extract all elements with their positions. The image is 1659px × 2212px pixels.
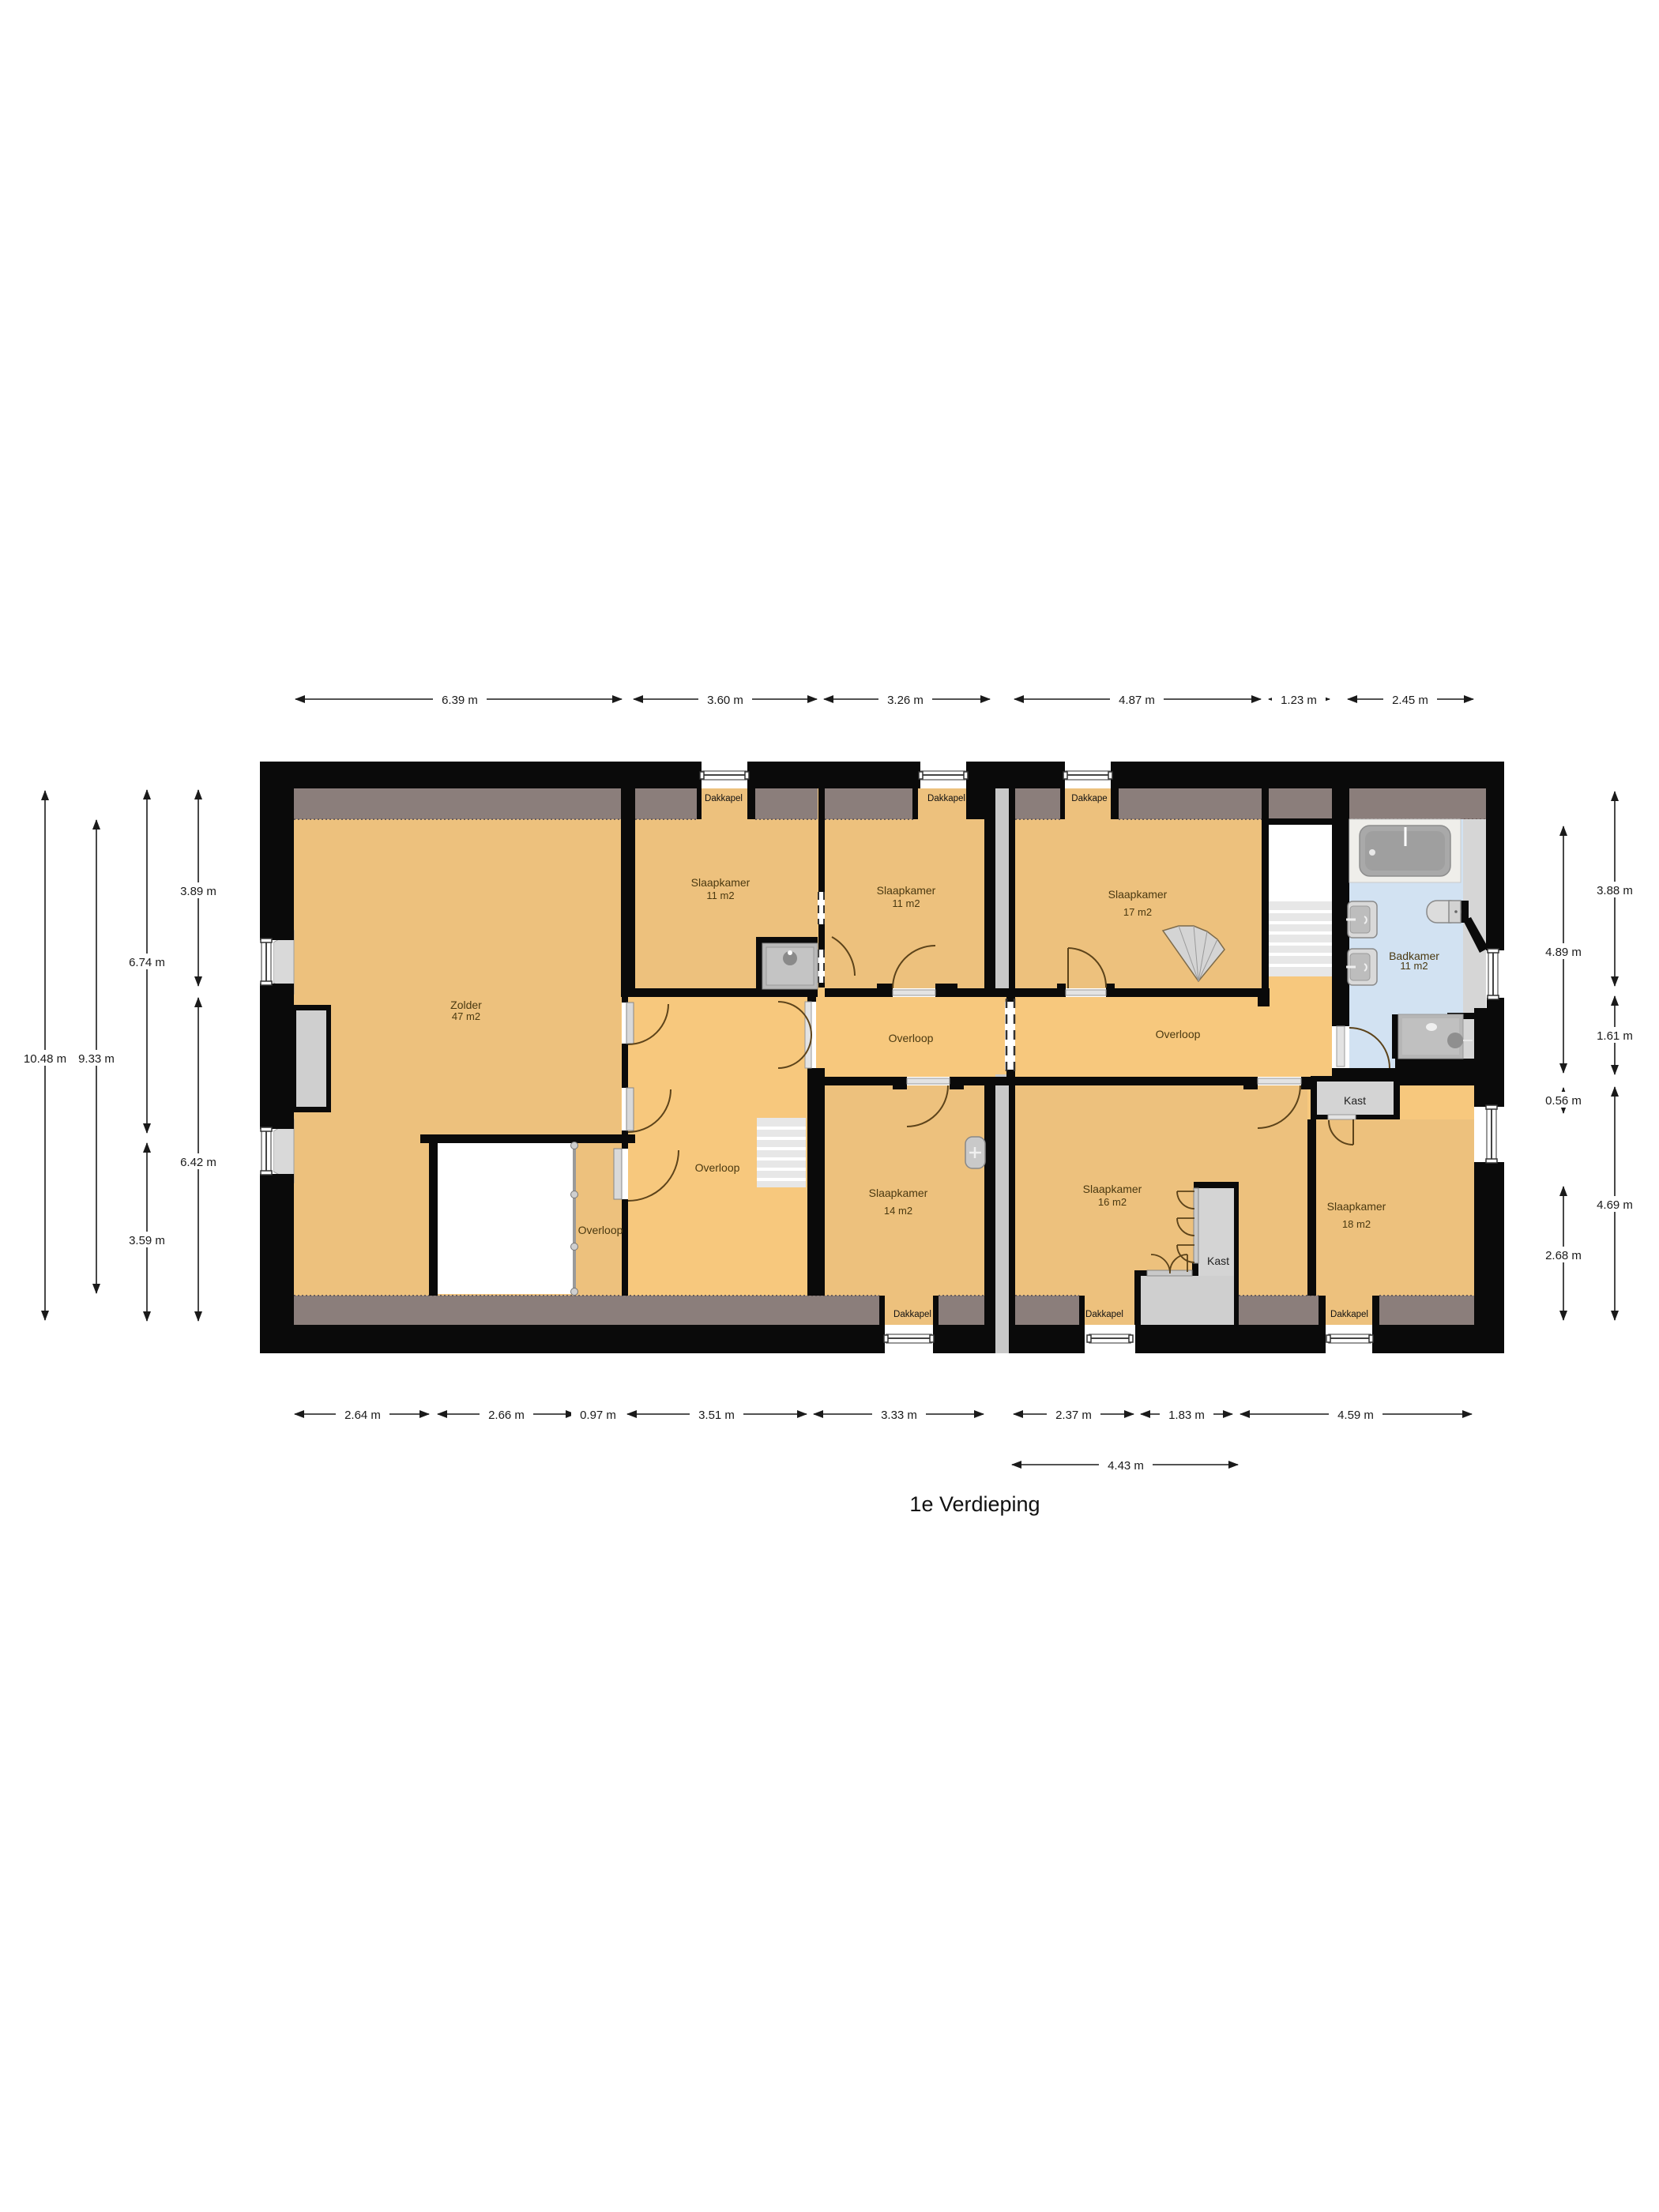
svg-text:3.59 m: 3.59 m: [129, 1234, 165, 1247]
svg-text:Zolder: Zolder: [450, 999, 482, 1011]
svg-text:Dakkapel: Dakkapel: [893, 1310, 931, 1319]
svg-text:6.39 m: 6.39 m: [442, 694, 478, 707]
svg-text:1.83 m: 1.83 m: [1168, 1409, 1205, 1422]
svg-text:Dakkapel: Dakkapel: [927, 794, 965, 803]
svg-text:2.66 m: 2.66 m: [488, 1409, 525, 1422]
svg-text:17 m2: 17 m2: [1123, 906, 1152, 918]
svg-text:11 m2: 11 m2: [892, 897, 920, 909]
svg-text:Overloop: Overloop: [695, 1161, 740, 1174]
svg-text:3.51 m: 3.51 m: [698, 1409, 735, 1422]
svg-text:6.74 m: 6.74 m: [129, 956, 165, 969]
svg-text:3.33 m: 3.33 m: [881, 1409, 917, 1422]
svg-text:4.87 m: 4.87 m: [1119, 694, 1155, 707]
svg-text:3.88 m: 3.88 m: [1597, 884, 1633, 897]
svg-text:4.69 m: 4.69 m: [1597, 1198, 1633, 1212]
svg-text:4.59 m: 4.59 m: [1337, 1409, 1374, 1422]
svg-text:Dakkapel: Dakkapel: [705, 794, 743, 803]
svg-text:Slaapkamer: Slaapkamer: [1083, 1183, 1142, 1195]
svg-text:3.26 m: 3.26 m: [887, 694, 924, 707]
svg-text:Slaapkamer: Slaapkamer: [877, 884, 936, 897]
svg-text:2.68 m: 2.68 m: [1545, 1249, 1582, 1262]
svg-text:1e Verdieping: 1e Verdieping: [909, 1492, 1040, 1516]
svg-text:Overloop: Overloop: [1156, 1028, 1201, 1040]
svg-text:Dakkapel: Dakkapel: [1085, 1310, 1123, 1319]
svg-text:6.42 m: 6.42 m: [180, 1156, 216, 1169]
svg-text:1.61 m: 1.61 m: [1597, 1029, 1633, 1043]
svg-text:Overloop: Overloop: [578, 1224, 623, 1236]
svg-text:Kast: Kast: [1344, 1094, 1366, 1107]
svg-text:11 m2: 11 m2: [1400, 960, 1428, 972]
svg-text:16 m2: 16 m2: [1098, 1196, 1127, 1208]
svg-text:2.45 m: 2.45 m: [1392, 694, 1428, 707]
svg-text:0.56 m: 0.56 m: [1545, 1094, 1582, 1108]
svg-text:2.64 m: 2.64 m: [344, 1409, 381, 1422]
svg-text:2.37 m: 2.37 m: [1055, 1409, 1092, 1422]
svg-text:4.43 m: 4.43 m: [1108, 1459, 1144, 1473]
svg-text:Dakkapel: Dakkapel: [1330, 1310, 1368, 1319]
svg-text:Slaapkamer: Slaapkamer: [691, 876, 750, 889]
svg-text:14 m2: 14 m2: [884, 1205, 912, 1217]
svg-text:11 m2: 11 m2: [706, 890, 734, 901]
svg-text:3.89 m: 3.89 m: [180, 885, 216, 898]
svg-text:Overloop: Overloop: [889, 1032, 934, 1044]
svg-text:9.33 m: 9.33 m: [78, 1052, 115, 1066]
svg-text:0.97 m: 0.97 m: [580, 1409, 616, 1422]
svg-text:Kast: Kast: [1207, 1255, 1229, 1267]
svg-text:Slaapkamer: Slaapkamer: [869, 1187, 928, 1199]
svg-text:18 m2: 18 m2: [1342, 1218, 1371, 1230]
svg-text:10.48 m: 10.48 m: [24, 1052, 66, 1066]
svg-text:1.23 m: 1.23 m: [1281, 694, 1317, 707]
svg-text:3.60 m: 3.60 m: [707, 694, 743, 707]
svg-text:4.89 m: 4.89 m: [1545, 946, 1582, 959]
svg-text:Slaapkamer: Slaapkamer: [1327, 1200, 1386, 1213]
svg-text:Slaapkamer: Slaapkamer: [1108, 888, 1168, 901]
svg-text:47 m2: 47 m2: [452, 1010, 480, 1022]
svg-text:Dakkape: Dakkape: [1071, 794, 1107, 803]
